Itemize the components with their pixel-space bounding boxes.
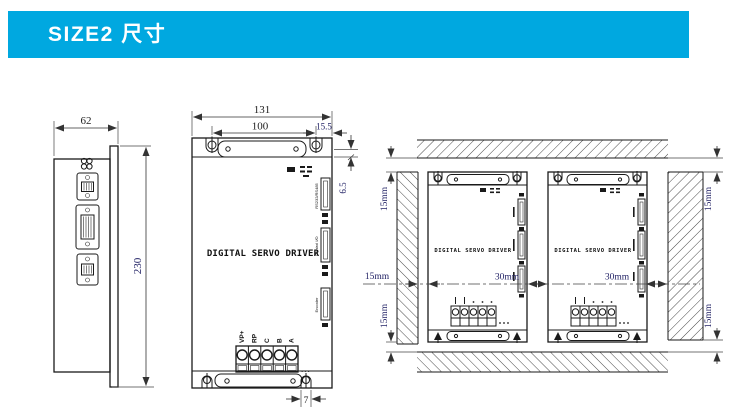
screw-icon [208, 137, 216, 154]
control-io-port-icon [321, 228, 330, 262]
db9-connector-icon [77, 254, 98, 285]
install-unit-1: DIGITAL SERVO DRIVER [428, 171, 527, 343]
dim-hole-span: 100 [252, 121, 269, 133]
terminal-label-c: C [264, 338, 271, 343]
terminal-label-a: A [289, 338, 296, 343]
indicator-leds-icon [81, 158, 92, 169]
terminal-label-rp: RP [252, 333, 259, 343]
dim-slot-width: 7 [304, 396, 309, 406]
device-label: DIGITAL SERVO DRIVER [207, 249, 320, 259]
dim-gap-bottom-left: 15mm [380, 303, 390, 328]
screw-icon [312, 137, 320, 154]
db25-connector-icon [76, 205, 99, 249]
port-label-encoder: Encoder [314, 297, 319, 313]
status-led-icon [287, 167, 295, 172]
install-unit-label: DIGITAL SERVO DRIVER [434, 248, 511, 254]
dim-gap-left: 15mm [365, 272, 390, 282]
right-wall [668, 172, 703, 340]
dim-edge-offset: 15.5 [316, 122, 332, 132]
dim-side-width: 62 [81, 115, 92, 127]
dimension-drawing: 62 230 [0, 0, 731, 414]
front-view: 131 100 15.5 6.5 [192, 104, 358, 407]
comm-port-icon [321, 178, 330, 210]
encoder-port-icon [321, 288, 330, 320]
front-body [192, 138, 332, 388]
dim-side-height: 230 [132, 257, 144, 274]
dim-gap-top-right: 15mm [704, 186, 714, 211]
db9-connector-icon [77, 173, 98, 200]
bottom-plate [215, 374, 302, 387]
port-label-rs232: RS232/RS485 [314, 182, 319, 208]
dim-gap-wall: 30mm [605, 273, 630, 283]
terminal-label-vp: VP+ [239, 330, 246, 343]
dim-overall-width: 131 [254, 104, 271, 116]
side-view: 62 230 [54, 115, 154, 387]
top-plate [218, 141, 306, 157]
dim-gap-units: 30mm [495, 273, 520, 283]
dim-gap-bottom-right: 15mm [704, 303, 714, 328]
floor-wall [417, 352, 668, 372]
ceiling-wall [417, 140, 668, 158]
terminal-label-b: B [277, 338, 284, 343]
dip-switch-icon [300, 166, 312, 177]
screw-icon [204, 373, 211, 388]
more-terminals-ellipsis: ... [301, 364, 311, 374]
install-unit-2 [548, 171, 647, 343]
side-mounting-flange [110, 146, 118, 387]
terminal-block [236, 346, 298, 372]
left-wall [397, 172, 418, 344]
page: SIZE2 尺寸 62 230 [0, 0, 731, 414]
dim-top-offset: 6.5 [338, 182, 348, 194]
screw-icon [303, 373, 310, 388]
installation-view: DIGITAL SERVO DRIVER [363, 140, 723, 372]
dim-gap-top-left: 15mm [380, 186, 390, 211]
